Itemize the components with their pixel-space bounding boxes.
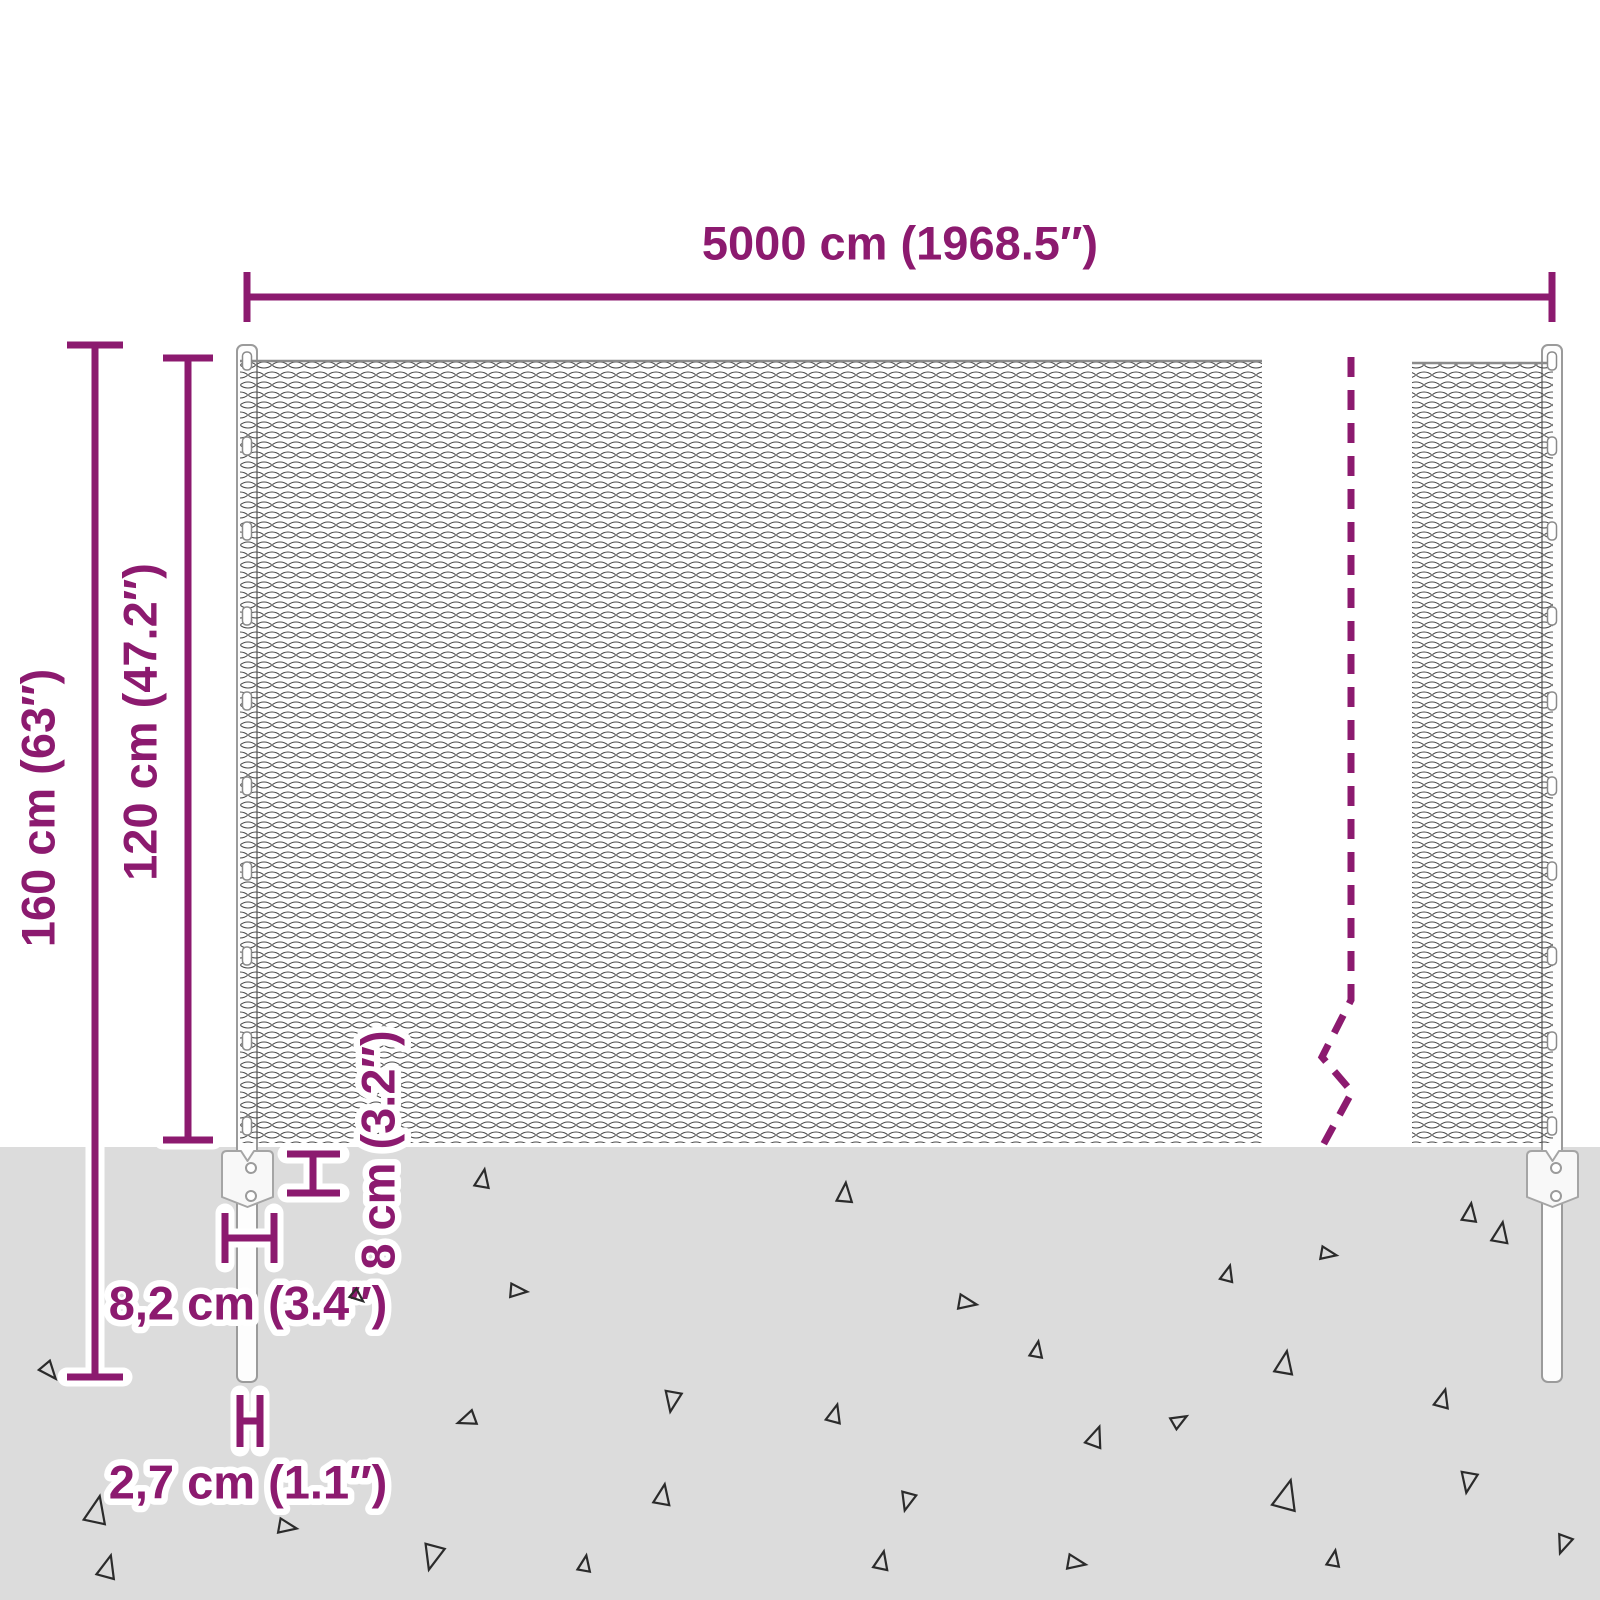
anchor-depth-label: 8 cm (3.2″) (352, 1030, 405, 1269)
post-clip (243, 1117, 252, 1135)
post-clip (243, 522, 252, 540)
post-clip (1548, 692, 1557, 710)
post-clip (1548, 1117, 1557, 1135)
post-clip (243, 1032, 252, 1050)
post-clip (1548, 437, 1557, 455)
left-anchor-hole-top (246, 1163, 256, 1173)
right-anchor-hole-top (1551, 1163, 1561, 1173)
anchor-width-label: 8,2 cm (3.4″) (109, 1277, 388, 1330)
fence-dimension-diagram: 5000 cm (1968.5″) 160 cm (63″) 120 cm (4… (0, 0, 1600, 1600)
main-mesh-panel (240, 360, 1262, 1143)
post-clip (1548, 947, 1557, 965)
post-clip (243, 352, 252, 370)
post-clip (243, 437, 252, 455)
post-clip (243, 947, 252, 965)
post-clip (1548, 862, 1557, 880)
post-clip (243, 862, 252, 880)
width-label: 5000 cm (1968.5″) (702, 217, 1098, 270)
post-clip (1548, 777, 1557, 795)
post-diameter-label: 2,7 cm (1.1″) (109, 1456, 388, 1509)
left-anchor-hole-bottom (246, 1191, 256, 1201)
spare-mesh-panel (1412, 362, 1553, 1143)
post-clip (243, 692, 252, 710)
diagram-canvas: 5000 cm (1968.5″) 160 cm (63″) 120 cm (4… (0, 0, 1600, 1600)
post-clip (243, 777, 252, 795)
width-dimension-line (247, 272, 1552, 322)
post-clip (243, 607, 252, 625)
fence-height-dimension-line (163, 358, 213, 1140)
total-height-label: 160 cm (63″) (12, 669, 65, 948)
panel-break-dashed-line (1322, 357, 1352, 1147)
post-clip (1548, 352, 1557, 370)
post-clip (1548, 1032, 1557, 1050)
post-clip (1548, 522, 1557, 540)
post-clip (1548, 607, 1557, 625)
fence-height-label: 120 cm (47.2″) (114, 563, 167, 881)
right-anchor-hole-bottom (1551, 1191, 1561, 1201)
